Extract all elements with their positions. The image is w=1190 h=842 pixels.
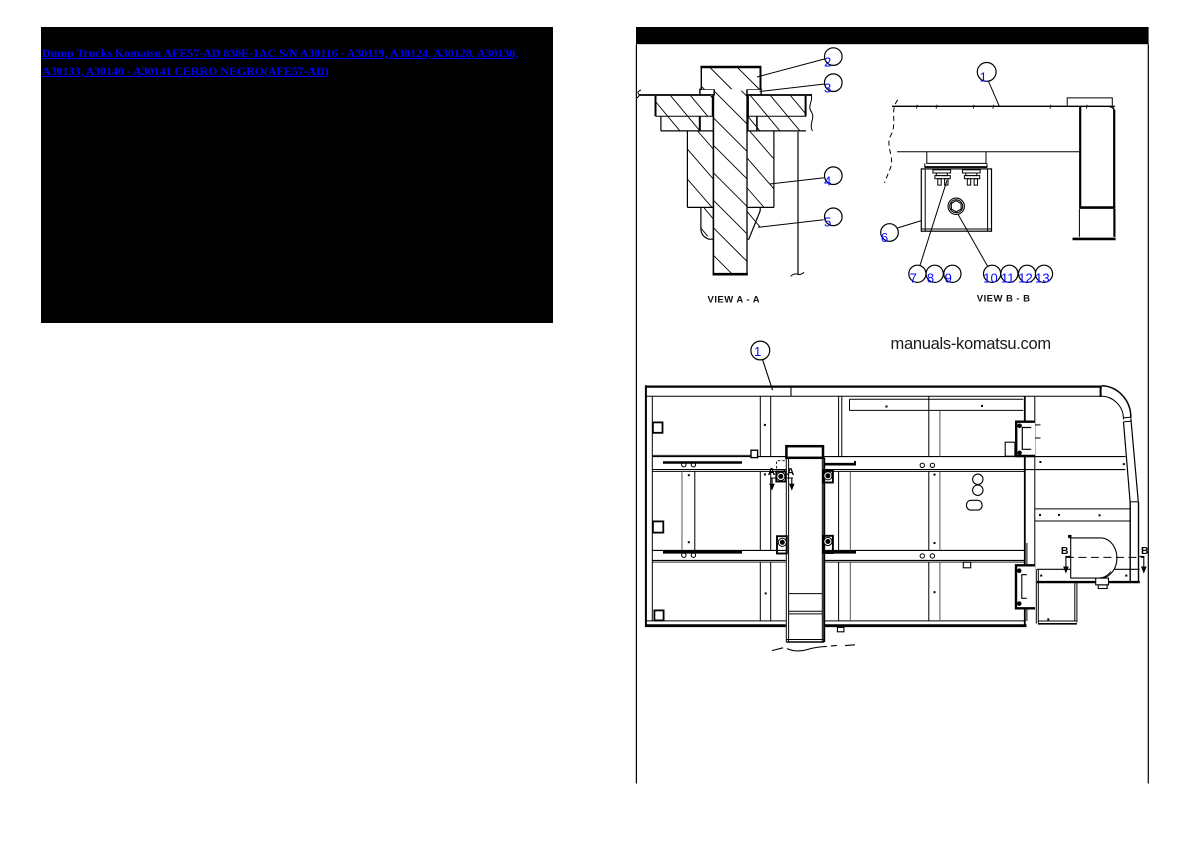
svg-text:manuals-komatsu.com: manuals-komatsu.com: [891, 335, 1051, 353]
svg-text:A: A: [787, 466, 795, 478]
svg-text:A: A: [768, 466, 776, 478]
svg-text:B: B: [1061, 545, 1069, 557]
svg-text:7: 7: [910, 271, 917, 286]
svg-text:6: 6: [881, 230, 888, 245]
svg-text:10: 10: [983, 271, 997, 286]
svg-text:8: 8: [927, 271, 934, 286]
svg-text:11: 11: [1001, 271, 1015, 286]
svg-text:VIEW B - B: VIEW B - B: [977, 293, 1031, 304]
svg-text:2: 2: [824, 54, 831, 69]
svg-text:13: 13: [1035, 271, 1049, 286]
svg-text:B: B: [1141, 545, 1149, 557]
svg-text:1: 1: [980, 69, 987, 84]
svg-text:9: 9: [945, 271, 952, 286]
svg-text:5: 5: [824, 215, 831, 230]
svg-text:4: 4: [824, 174, 831, 189]
svg-text:VIEW A - A: VIEW A - A: [708, 295, 761, 306]
svg-text:3: 3: [824, 81, 831, 96]
svg-text:1: 1: [754, 344, 761, 359]
svg-text:12: 12: [1018, 271, 1032, 286]
